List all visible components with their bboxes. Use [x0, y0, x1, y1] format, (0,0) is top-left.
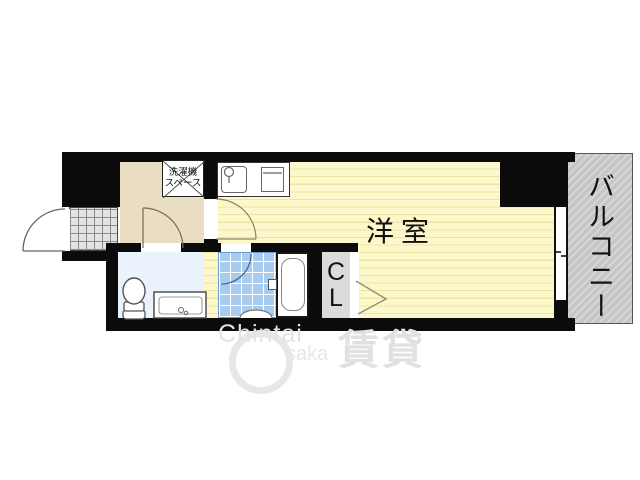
vanity-basin: [159, 297, 202, 314]
bath-door-arc: [221, 254, 251, 284]
washroom-door-arc: [143, 208, 183, 248]
watermark-kanji: 賃貸: [338, 316, 426, 376]
sink-faucet: [225, 168, 234, 177]
entrance-door-arc: [23, 209, 65, 251]
bath-counter-arch: [240, 310, 272, 318]
watermark-latin-bottom: saka: [286, 343, 328, 366]
floor-plan: 洗濯機 スペース C L バルコニー 洋室: [0, 0, 640, 480]
toilet-bowl: [123, 278, 145, 304]
closet-door-chevron: [356, 281, 386, 314]
room-door-arc: [216, 199, 256, 239]
fixture-symbols: [0, 0, 640, 480]
